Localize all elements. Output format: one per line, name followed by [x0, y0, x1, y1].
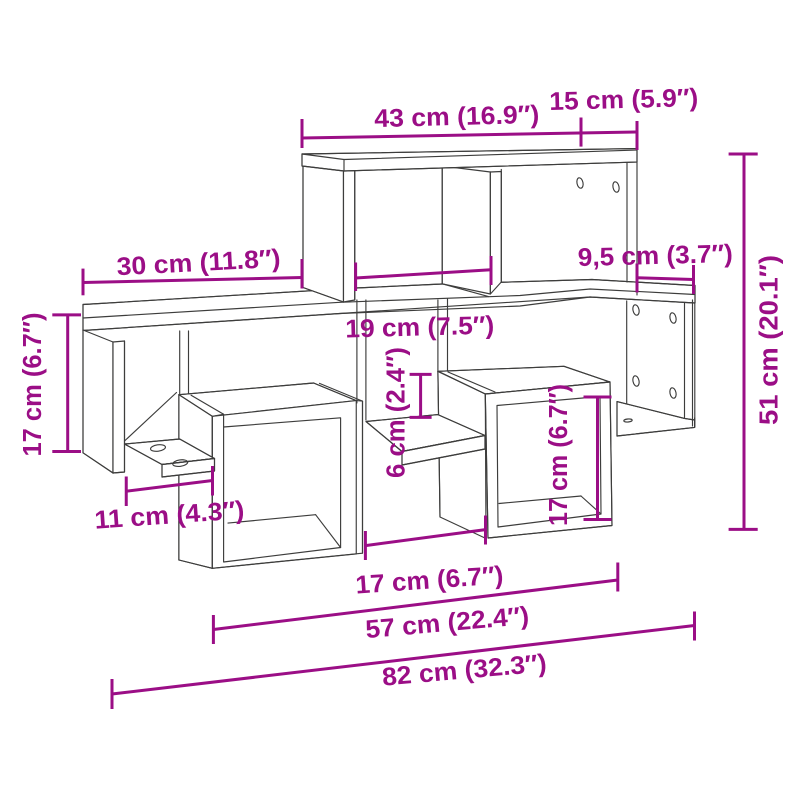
- svg-text:6 cm (2.4″): 6 cm (2.4″): [383, 347, 411, 478]
- svg-text:43 cm (16.9″): 43 cm (16.9″): [374, 101, 540, 133]
- svg-text:9,5 cm (3.7″): 9,5 cm (3.7″): [577, 240, 733, 272]
- svg-text:51 cm (20.1″): 51 cm (20.1″): [756, 255, 784, 425]
- svg-text:17 cm (6.7″): 17 cm (6.7″): [545, 384, 573, 526]
- svg-text:17 cm (6.7″): 17 cm (6.7″): [19, 313, 47, 457]
- svg-text:15 cm (5.9″): 15 cm (5.9″): [549, 84, 699, 116]
- svg-text:19 cm (7.5″): 19 cm (7.5″): [345, 312, 495, 344]
